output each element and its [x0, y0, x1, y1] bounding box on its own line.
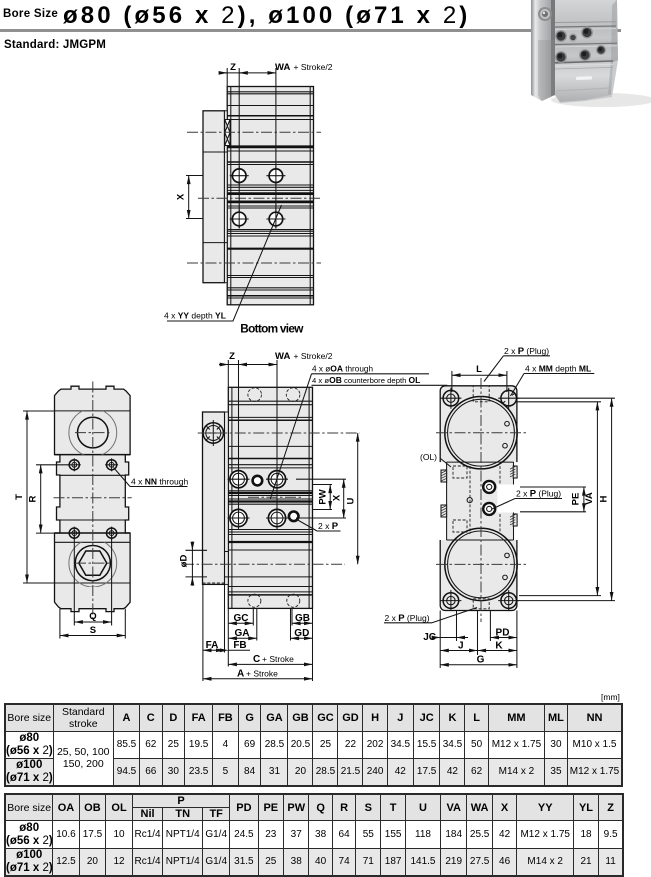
svg-text:GB: GB [295, 613, 310, 624]
svg-text:L: L [476, 364, 482, 375]
svg-text:Z: Z [230, 62, 236, 73]
svg-text:X: X [176, 193, 187, 200]
svg-text:(OL): (OL) [420, 452, 437, 462]
svg-text:+ Stroke/2: + Stroke/2 [294, 351, 333, 361]
svg-text:X: X [332, 494, 343, 501]
svg-text:+ Stroke/2: + Stroke/2 [294, 62, 333, 72]
svg-text:VA: VA [584, 492, 595, 505]
svg-text:GC: GC [234, 613, 249, 624]
svg-text:FB: FB [233, 640, 246, 651]
svg-text:K: K [495, 641, 503, 652]
svg-text:2 x P (Plug): 2 x P (Plug) [385, 613, 430, 624]
svg-text:4 x YY depth YL: 4 x YY depth YL [164, 311, 226, 321]
svg-text:Q: Q [89, 611, 96, 622]
svg-text:WA: WA [275, 62, 290, 73]
svg-text:PE: PE [571, 493, 582, 506]
svg-text:2 x P: 2 x P [318, 521, 339, 532]
svg-text:PW: PW [318, 489, 329, 504]
svg-text:4 x øOA through: 4 x øOA through [312, 364, 373, 374]
svg-text:U: U [346, 497, 357, 504]
svg-text:R: R [28, 495, 39, 502]
svg-text:4 x NN through: 4 x NN through [131, 477, 188, 487]
svg-text:G: G [477, 654, 485, 665]
svg-text:4 x øOB counterbore depth OL: 4 x øOB counterbore depth OL [312, 375, 420, 385]
svg-text:4 x MM depth ML: 4 x MM depth ML [525, 364, 591, 374]
svg-text:C: C [253, 654, 260, 665]
svg-text:Z: Z [229, 351, 235, 362]
svg-text:S: S [90, 625, 96, 636]
svg-text:H: H [599, 495, 610, 502]
svg-text:2 x P (Plug): 2 x P (Plug) [504, 346, 549, 357]
svg-text:GA: GA [235, 628, 250, 639]
svg-text:+ Stroke: + Stroke [246, 668, 278, 678]
svg-text:2 x P (Plug): 2 x P (Plug) [516, 489, 561, 500]
svg-text:+ Stroke: + Stroke [262, 654, 294, 664]
svg-text:A: A [237, 668, 244, 679]
svg-text:GD: GD [294, 628, 309, 639]
svg-text:FA: FA [206, 640, 219, 651]
svg-text:PD: PD [496, 628, 510, 639]
svg-text:Bottom view: Bottom view [240, 321, 304, 335]
svg-text:J: J [458, 641, 464, 652]
svg-text:WA: WA [275, 351, 290, 362]
svg-text:øD: øD [179, 555, 190, 568]
svg-text:T: T [14, 494, 25, 500]
svg-text:JC: JC [423, 632, 436, 643]
